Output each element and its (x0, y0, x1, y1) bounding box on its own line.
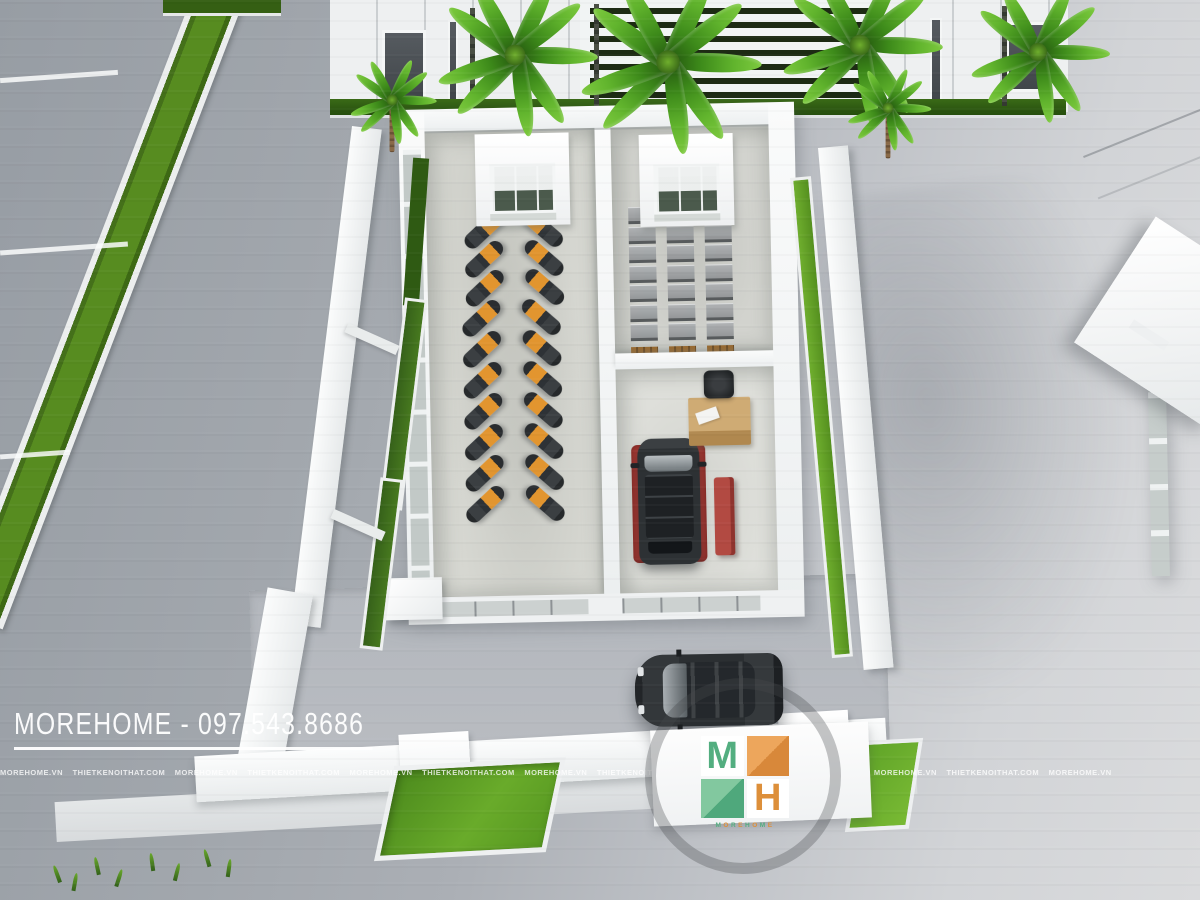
storefront-glass (436, 599, 588, 617)
office-chair (704, 370, 735, 399)
rack-box (705, 264, 732, 282)
suv-mirror (630, 463, 639, 468)
motorbike (523, 482, 568, 524)
storage-rack-row (628, 207, 658, 374)
storage-rack-row (704, 205, 734, 372)
watermark-strip: MOREHOME.VN THIETKENOITHAT.COM MOREHOME.… (0, 766, 1200, 780)
palm-crown-core (656, 50, 679, 73)
paper-sheet (695, 406, 720, 425)
front-porch-block (385, 577, 443, 620)
facade-window (930, 18, 942, 102)
palm-crown-core (386, 94, 397, 105)
roadside-plants (55, 845, 245, 900)
rack-box (669, 323, 696, 341)
render-scene: MOREHOME.VN THIETKENOITHAT.COM MOREHOME.… (0, 0, 1200, 900)
reception-desk (688, 397, 751, 446)
palm-crown-core (505, 45, 526, 66)
sedan-headlight (638, 705, 644, 714)
storage-racks (622, 204, 765, 373)
suv-roof (645, 474, 694, 539)
rack-box (704, 225, 731, 243)
logo-ring (645, 678, 841, 874)
upper-median-grass (163, 0, 281, 13)
bike-group-front (454, 220, 576, 314)
red-bench (714, 477, 736, 555)
road-edge-line (1083, 100, 1200, 158)
sedan-mirror (676, 649, 681, 656)
rack-box (667, 245, 694, 263)
interior-wall-horizontal (615, 350, 773, 369)
portal-sill (490, 213, 556, 221)
palm-crown-core (1029, 43, 1047, 61)
facade-window (448, 20, 458, 102)
rack-box (629, 246, 656, 264)
grass-blade (71, 873, 78, 891)
storefront-glass (622, 596, 760, 614)
rack-box (630, 304, 657, 322)
rack-box (668, 284, 695, 302)
sedan-headlight (638, 667, 644, 676)
west-boundary-fence (291, 126, 382, 628)
watermark-main: MOREHOME - 097.543.8686 (14, 706, 372, 750)
palm-crown-core (883, 103, 894, 114)
showroom-building (398, 102, 805, 625)
rack-box (706, 283, 733, 301)
suv-mirror (697, 462, 706, 467)
grass-blade (114, 869, 123, 887)
rack-box (667, 264, 694, 282)
portal-sill (654, 213, 720, 221)
suv-vehicle (637, 438, 702, 565)
suv-windshield (644, 455, 692, 472)
rack-box (705, 244, 732, 262)
grass-blade (93, 857, 101, 875)
road-marking (0, 70, 118, 83)
portal-window (489, 163, 556, 214)
rack-box (668, 303, 695, 321)
grass-blade (173, 863, 181, 881)
rack-box (666, 225, 693, 243)
showroom-entry-portal (475, 132, 571, 226)
storage-rack-row (666, 206, 696, 373)
rack-box (630, 285, 657, 303)
rack-box (707, 322, 734, 340)
road-median-grass-strip (0, 0, 243, 629)
grass-blade (52, 865, 62, 883)
bike-group-main (452, 308, 577, 530)
rack-box (629, 265, 656, 283)
rack-box (631, 324, 658, 342)
service-room (615, 366, 778, 593)
rack-box (628, 226, 655, 244)
grass-blade (226, 859, 232, 877)
grass-blade (149, 853, 155, 871)
rack-box (706, 303, 733, 321)
portal-window (653, 163, 720, 214)
palm-crown-core (850, 35, 871, 56)
grass-blade (203, 849, 212, 867)
suv-rear-window (648, 541, 692, 554)
